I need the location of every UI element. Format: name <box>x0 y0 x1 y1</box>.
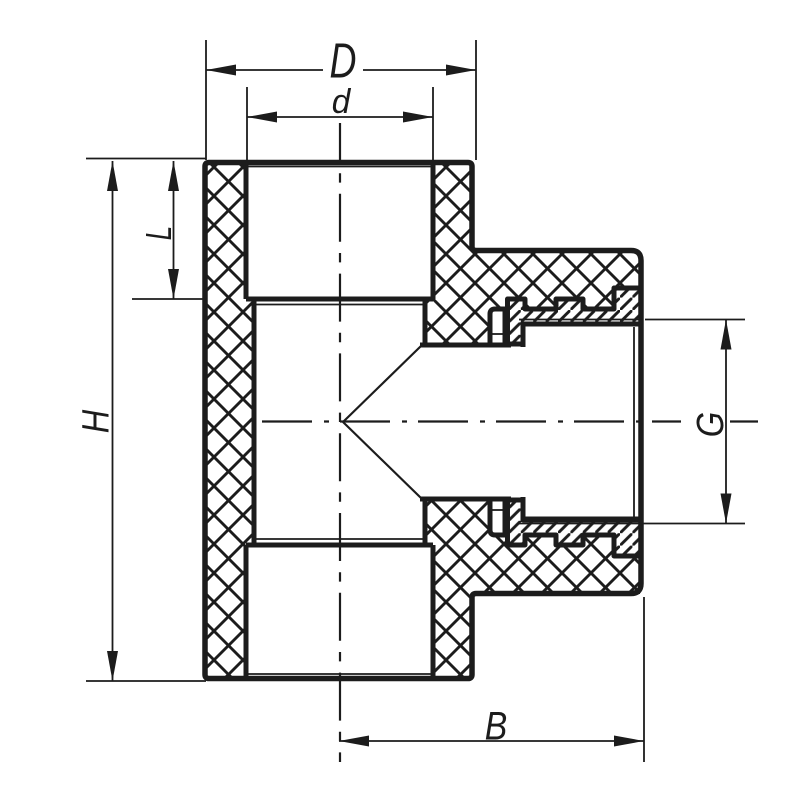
svg-text:B: B <box>485 705 508 749</box>
svg-text:d: d <box>332 83 352 121</box>
svg-text:L: L <box>138 226 179 241</box>
svg-text:H: H <box>76 409 118 433</box>
svg-text:D: D <box>330 35 357 89</box>
svg-text:G: G <box>690 412 732 438</box>
